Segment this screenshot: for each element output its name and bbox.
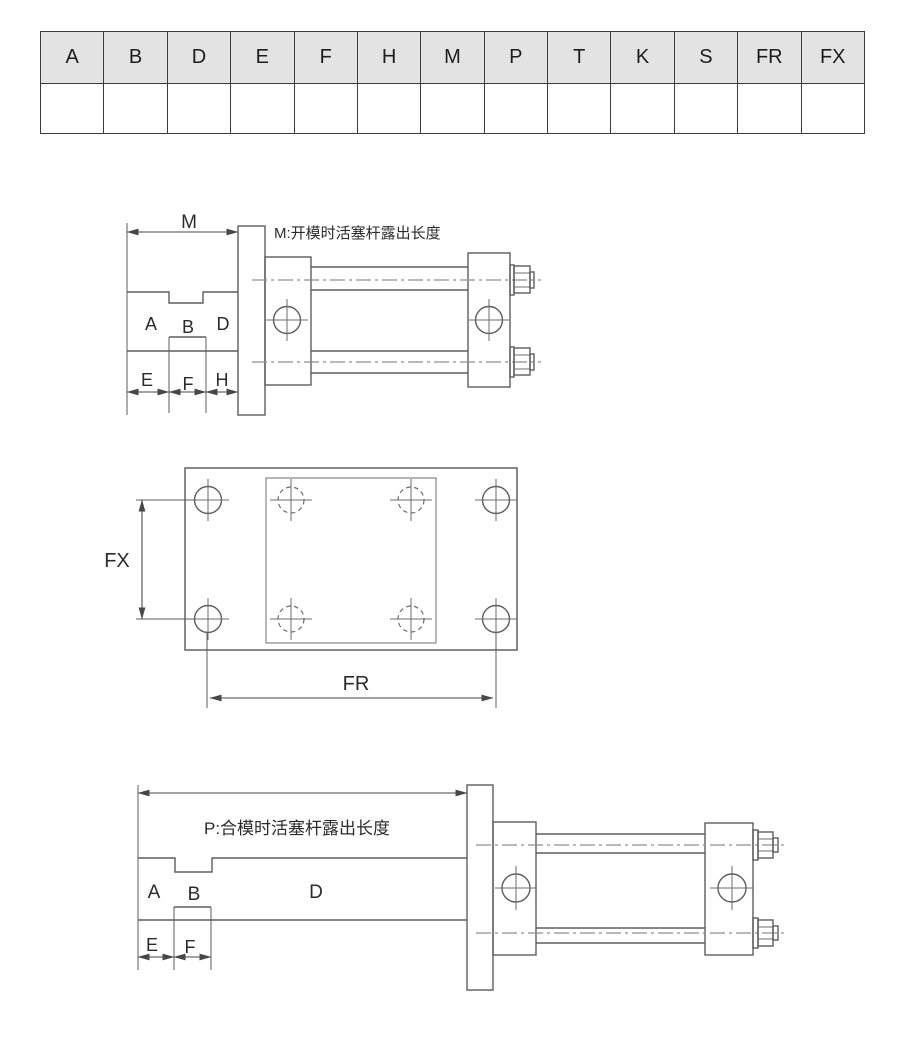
piston-rod-profile: [127, 292, 238, 413]
centerlines: [476, 845, 786, 933]
dim-label-E: E: [146, 935, 158, 955]
tie-rod-hole-top-left: [270, 479, 312, 521]
dim-label-A: A: [145, 314, 157, 334]
mount-hole-top-right: [475, 479, 517, 521]
dim-label-M: M: [181, 212, 197, 233]
dim-label-F: F: [185, 937, 196, 957]
port-cap: [469, 299, 509, 341]
centerlines: [252, 280, 541, 362]
dim-label-D: D: [217, 314, 230, 334]
dim-label-D: D: [309, 882, 323, 903]
dim-label-H: H: [216, 370, 229, 390]
tie-rod-hole-bottom-left: [270, 598, 312, 640]
dim-EFH: E F H: [127, 370, 238, 394]
closed-mold-note: P:合模时活塞杆露出长度: [204, 819, 390, 838]
dim-FX: FX: [104, 500, 196, 619]
port-head: [495, 866, 537, 910]
port-head: [266, 299, 308, 341]
cylinder-technical-drawing: M M:开模时活塞杆露出长度 A B D E F H: [0, 0, 900, 1040]
cylinder-head: [265, 257, 311, 385]
dim-label-E: E: [141, 370, 153, 390]
dim-label-FR: FR: [343, 673, 370, 695]
tie-rod-hole-bottom-right: [390, 598, 432, 640]
flange-plate: [238, 226, 265, 415]
open-mold-note: M:开模时活塞杆露出长度: [274, 224, 441, 242]
dim-label-A: A: [148, 882, 161, 903]
view-closed-mold: P:合模时活塞杆露出长度 A B D E F: [138, 785, 786, 990]
view-open-mold: M M:开模时活塞杆露出长度 A B D E F H: [127, 212, 541, 415]
dim-label-B: B: [182, 317, 194, 337]
port-cap: [710, 866, 754, 910]
dim-label-F: F: [183, 374, 194, 394]
view-flange-front: FX FR: [104, 468, 517, 708]
dim-FR: FR: [207, 633, 496, 708]
flange-plate: [467, 785, 493, 990]
catalog-drawing-page: A B D E F H M P T K S FR FX: [0, 0, 900, 1040]
tie-rods: [536, 834, 705, 943]
tie-rods: [311, 267, 468, 373]
flange-outline: [185, 468, 517, 650]
tie-rod-hole-top-right: [390, 479, 432, 521]
dim-label-B: B: [188, 884, 201, 905]
dim-label-FX: FX: [104, 550, 130, 572]
